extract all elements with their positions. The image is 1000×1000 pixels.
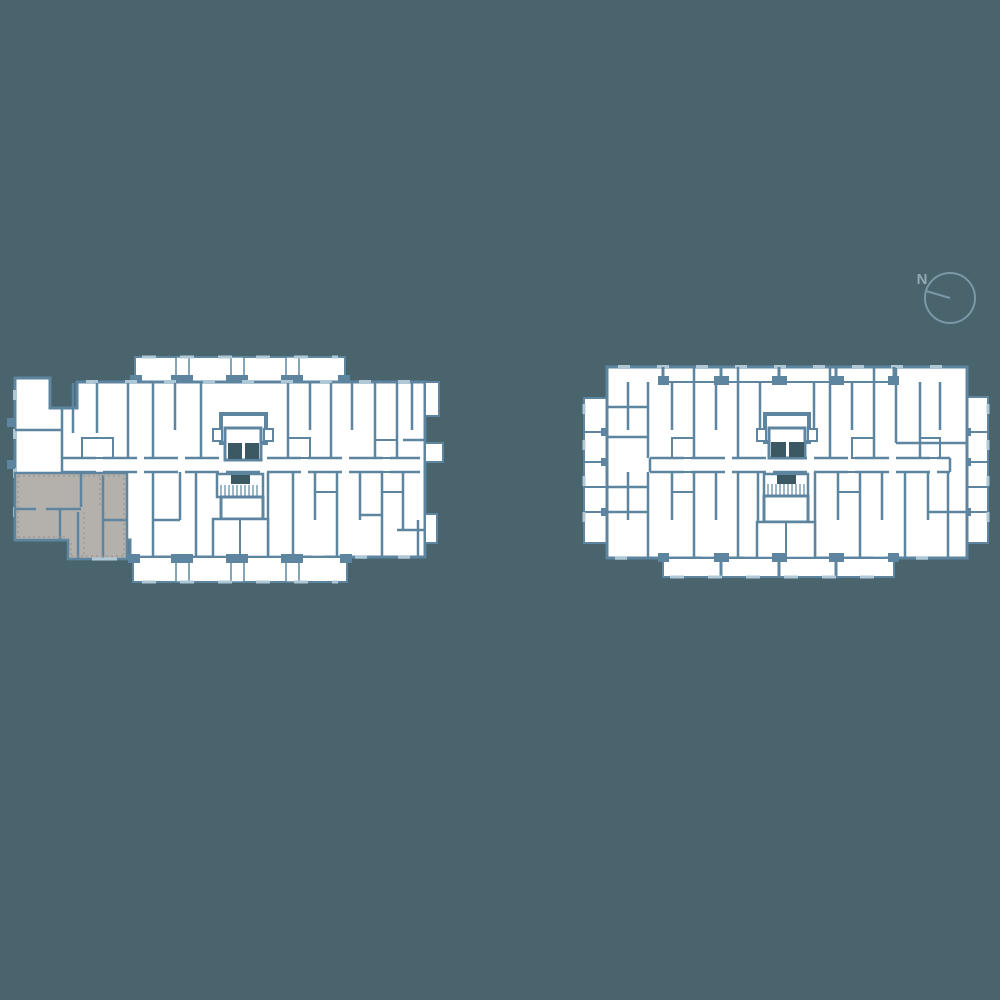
compass-north-label: N bbox=[917, 271, 928, 288]
compass-needle bbox=[926, 291, 950, 298]
left-plan-core bbox=[213, 414, 273, 557]
floorplan-canvas: N bbox=[0, 0, 1000, 1000]
highlighted-unit[interactable] bbox=[15, 473, 127, 559]
left-plan-bottom-balconies bbox=[128, 554, 352, 582]
left-plan-edge-stub bbox=[7, 460, 15, 469]
elevator-shaft bbox=[245, 443, 259, 459]
elevator-shaft bbox=[228, 443, 242, 459]
left-plan-top-balconies bbox=[130, 357, 350, 384]
left-plan-balcony-bottomright bbox=[425, 514, 437, 543]
left-floorplan[interactable] bbox=[7, 357, 443, 582]
left-plan-wing-right bbox=[425, 443, 443, 462]
left-plan-edge-stub bbox=[7, 418, 15, 427]
right-floorplan[interactable] bbox=[584, 367, 988, 577]
left-plan-balcony-topright bbox=[425, 382, 439, 416]
right-plan-core bbox=[757, 414, 817, 558]
elevator-shaft bbox=[771, 442, 786, 457]
floorplan-viewer: N bbox=[0, 0, 1000, 1000]
north-compass: N bbox=[917, 271, 975, 323]
elevator-shaft bbox=[789, 442, 804, 457]
